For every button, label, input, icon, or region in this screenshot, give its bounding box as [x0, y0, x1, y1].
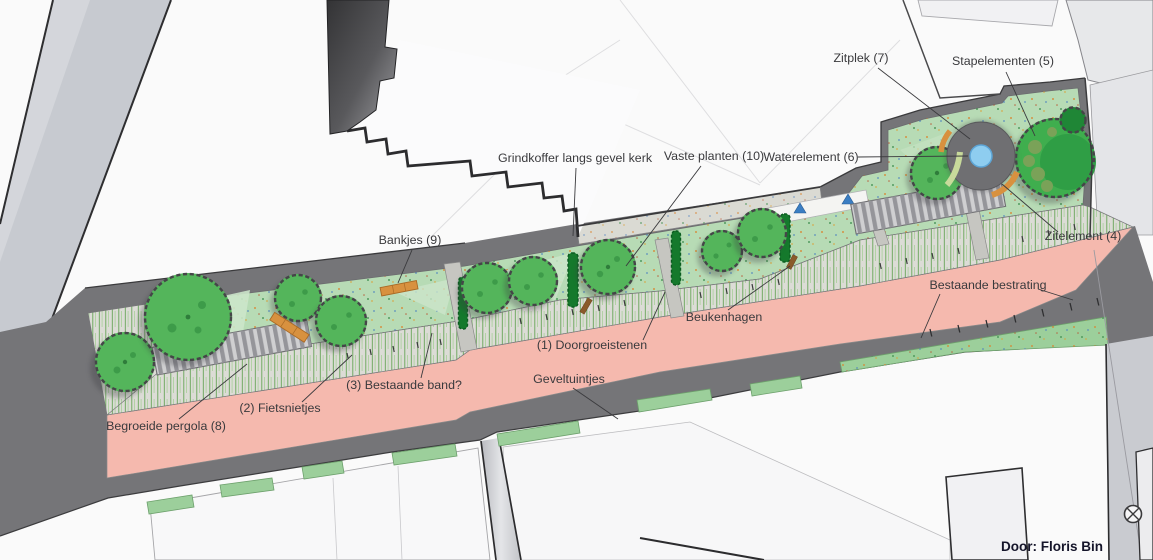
stack-element [1023, 155, 1035, 167]
label-bestaande-band: (3) Bestaande band? [346, 378, 462, 392]
compass-icon [1125, 506, 1142, 523]
stack-element [1047, 127, 1057, 137]
stack-element [1041, 180, 1053, 192]
label-zitplek: Zitplek (7) [833, 51, 888, 65]
label-stapelementen: Stapelementen (5) [952, 54, 1054, 68]
shrub [1060, 107, 1086, 133]
label-bestaande-bestrating: Bestaande bestrating [929, 278, 1046, 292]
site-plan: Zitplek (7) Stapelementen (5) Grindkoffe… [0, 0, 1153, 560]
label-geveltuintjes: Geveltuintjes [533, 372, 605, 386]
label-grindkoffer: Grindkoffer langs gevel kerk [498, 151, 653, 165]
site-plan-canvas: Zitplek (7) Stapelementen (5) Grindkoffe… [0, 0, 1153, 560]
label-zitelement: Zitelement (4) [1045, 229, 1121, 243]
label-bankjes: Bankjes (9) [379, 233, 442, 247]
label-begroeide-pergola: Begroeide pergola (8) [106, 419, 226, 433]
label-fietsnietjes: (2) Fietsnietjes [239, 401, 320, 415]
building-right [1090, 70, 1153, 235]
stack-element [1028, 140, 1042, 154]
label-beukenhagen: Beukenhagen [686, 310, 763, 324]
label-doorgroeistenen: (1) Doorgroeistenen [537, 338, 647, 352]
label-vaste-planten: Vaste planten (10) [664, 149, 764, 163]
water-element-circle [970, 145, 992, 167]
label-waterelement: Waterelement (6) [763, 150, 858, 164]
stack-element [1031, 167, 1045, 181]
credit-text: Door: Floris Bin [1001, 539, 1103, 554]
